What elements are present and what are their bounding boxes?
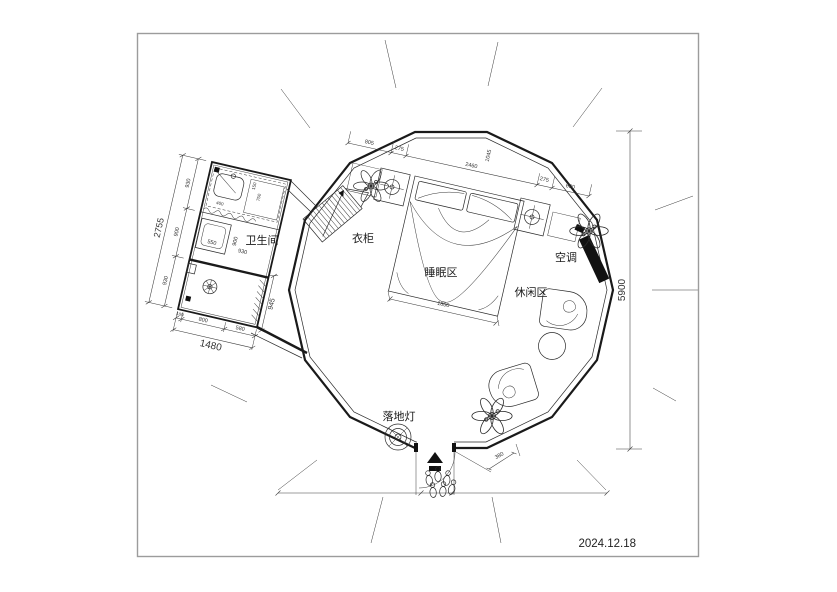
dim-bath-100: 100 xyxy=(176,311,185,318)
duvet-drape xyxy=(390,202,517,315)
dim-1045: 1045 xyxy=(485,149,494,162)
mirror-cabinet xyxy=(243,179,284,220)
plant-bottom xyxy=(472,396,512,435)
wardrobe-label: 衣柜 xyxy=(352,231,374,245)
bath-left-dim-chain xyxy=(164,159,198,306)
drawing-frame xyxy=(138,34,699,557)
person-icon xyxy=(439,481,447,496)
bed-outline xyxy=(388,176,524,316)
nightstand-right xyxy=(514,198,550,236)
bathroom-label: 卫生间 xyxy=(246,233,279,247)
dim-bath-2755: 2755 xyxy=(152,217,166,239)
dim-bath-750: 750 xyxy=(255,193,262,202)
bathroom-connector-walls xyxy=(287,181,316,212)
person-icon xyxy=(424,470,433,486)
bed-dim-extensions xyxy=(388,291,499,326)
person-icon xyxy=(429,482,437,497)
dim-bath-400: 400 xyxy=(216,200,225,207)
door-post-right xyxy=(452,443,456,452)
vanity-sink xyxy=(213,173,245,202)
pillow-right xyxy=(466,193,518,223)
shower-tray xyxy=(195,218,231,254)
dim-bath-930i: 930 xyxy=(237,248,247,256)
entry-arrow-icon xyxy=(427,452,443,463)
dim-bath-930a: 930 xyxy=(185,178,193,188)
room-wall-outer xyxy=(289,132,613,448)
door-gap-mask xyxy=(417,441,454,453)
floor-drain-icon xyxy=(201,278,218,295)
ac-unit xyxy=(579,235,609,283)
dim-690: 690 xyxy=(565,183,575,191)
dim-380: 380 xyxy=(494,451,505,461)
bathroom-partition-2 xyxy=(190,259,269,277)
dim-275b: 275 xyxy=(539,176,549,184)
nightstand-left-cross xyxy=(378,173,407,202)
floor-plan-page: 400 150 750 550 900 930 930 900 930 2755… xyxy=(0,0,837,592)
pipe-box-top xyxy=(214,167,220,173)
dim-5900: 5900 xyxy=(617,278,628,301)
floor-lamp-label: 落地灯 xyxy=(383,410,416,423)
dim-bath-550: 550 xyxy=(207,239,217,247)
ac-label: 空调 xyxy=(555,250,577,264)
floor-lamp-icon xyxy=(385,424,411,450)
dim-805: 805 xyxy=(364,139,374,147)
dim-bath-900: 900 xyxy=(173,227,181,237)
pillow-left xyxy=(415,181,467,211)
nightstand-right-cross xyxy=(518,203,547,232)
dim-1800: 1800 xyxy=(437,301,450,310)
bed xyxy=(388,176,524,316)
pipe-box-bottom xyxy=(185,296,191,302)
dim-bath-945: 945 xyxy=(267,298,276,311)
plant-top-left xyxy=(354,169,389,203)
leisure-area-label: 休闲区 xyxy=(515,285,548,299)
door-post-left xyxy=(414,443,418,452)
dim-bath-150: 150 xyxy=(251,181,258,190)
dim-bath-900i: 900 xyxy=(232,236,240,246)
nightstand-left xyxy=(374,168,410,206)
date-text: 2024.12.18 xyxy=(578,538,636,550)
pillow-creases xyxy=(418,184,515,220)
armchair-lower xyxy=(485,362,540,412)
floor-plan-canvas: 400 150 750 550 900 930 930 900 930 2755… xyxy=(0,0,837,592)
bathroom-annex: 400 150 750 550 900 930 930 900 930 2755… xyxy=(129,150,304,363)
side-table xyxy=(539,333,566,360)
ac-unit-body xyxy=(579,235,609,283)
sleeping-area-label: 睡眠区 xyxy=(425,266,458,279)
dim-bath-930b: 930 xyxy=(162,276,170,286)
person-icon xyxy=(443,470,452,486)
dim-275a: 275 xyxy=(394,145,404,153)
